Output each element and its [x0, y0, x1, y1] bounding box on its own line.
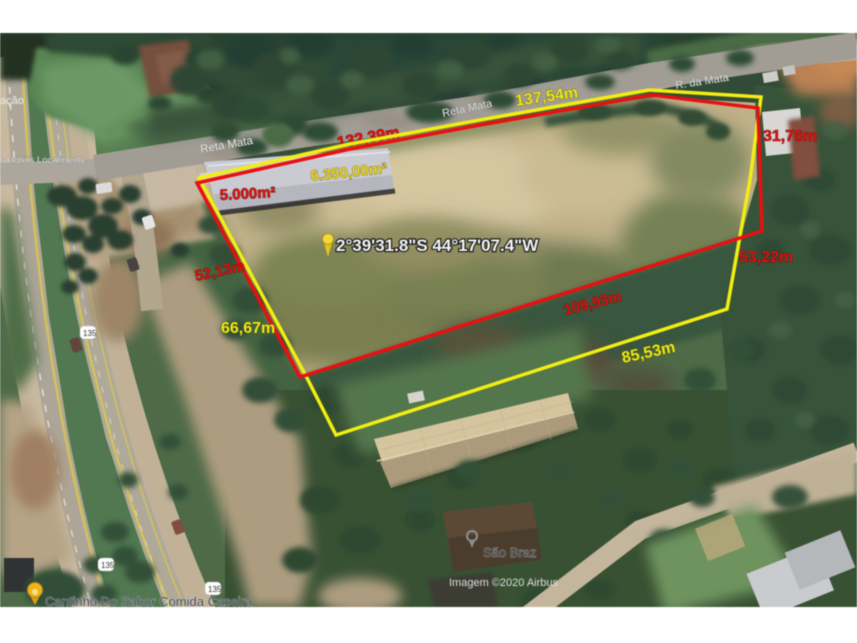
- svg-text:ação: ação: [0, 95, 24, 107]
- svg-text:Cantinho Do Sabor Comida Casei: Cantinho Do Sabor Comida Caseira: [45, 594, 253, 609]
- svg-text:135: 135: [208, 585, 222, 594]
- svg-text:53,22m: 53,22m: [739, 249, 793, 266]
- svg-text:31,76m: 31,76m: [763, 128, 817, 145]
- svg-text:2°39'31.8"S 44°17'07.4"W: 2°39'31.8"S 44°17'07.4"W: [336, 236, 539, 255]
- svg-text:66,67m: 66,67m: [221, 320, 275, 337]
- svg-text:Imagem ©2020 Airbus: Imagem ©2020 Airbus: [449, 577, 558, 589]
- svg-text:s Hotéis Localmente: s Hotéis Localmente: [0, 155, 86, 166]
- svg-text:135: 135: [101, 561, 115, 570]
- svg-text:5.000m²: 5.000m²: [219, 184, 276, 204]
- svg-text:São Braz: São Braz: [483, 545, 536, 560]
- svg-text:135: 135: [83, 329, 97, 338]
